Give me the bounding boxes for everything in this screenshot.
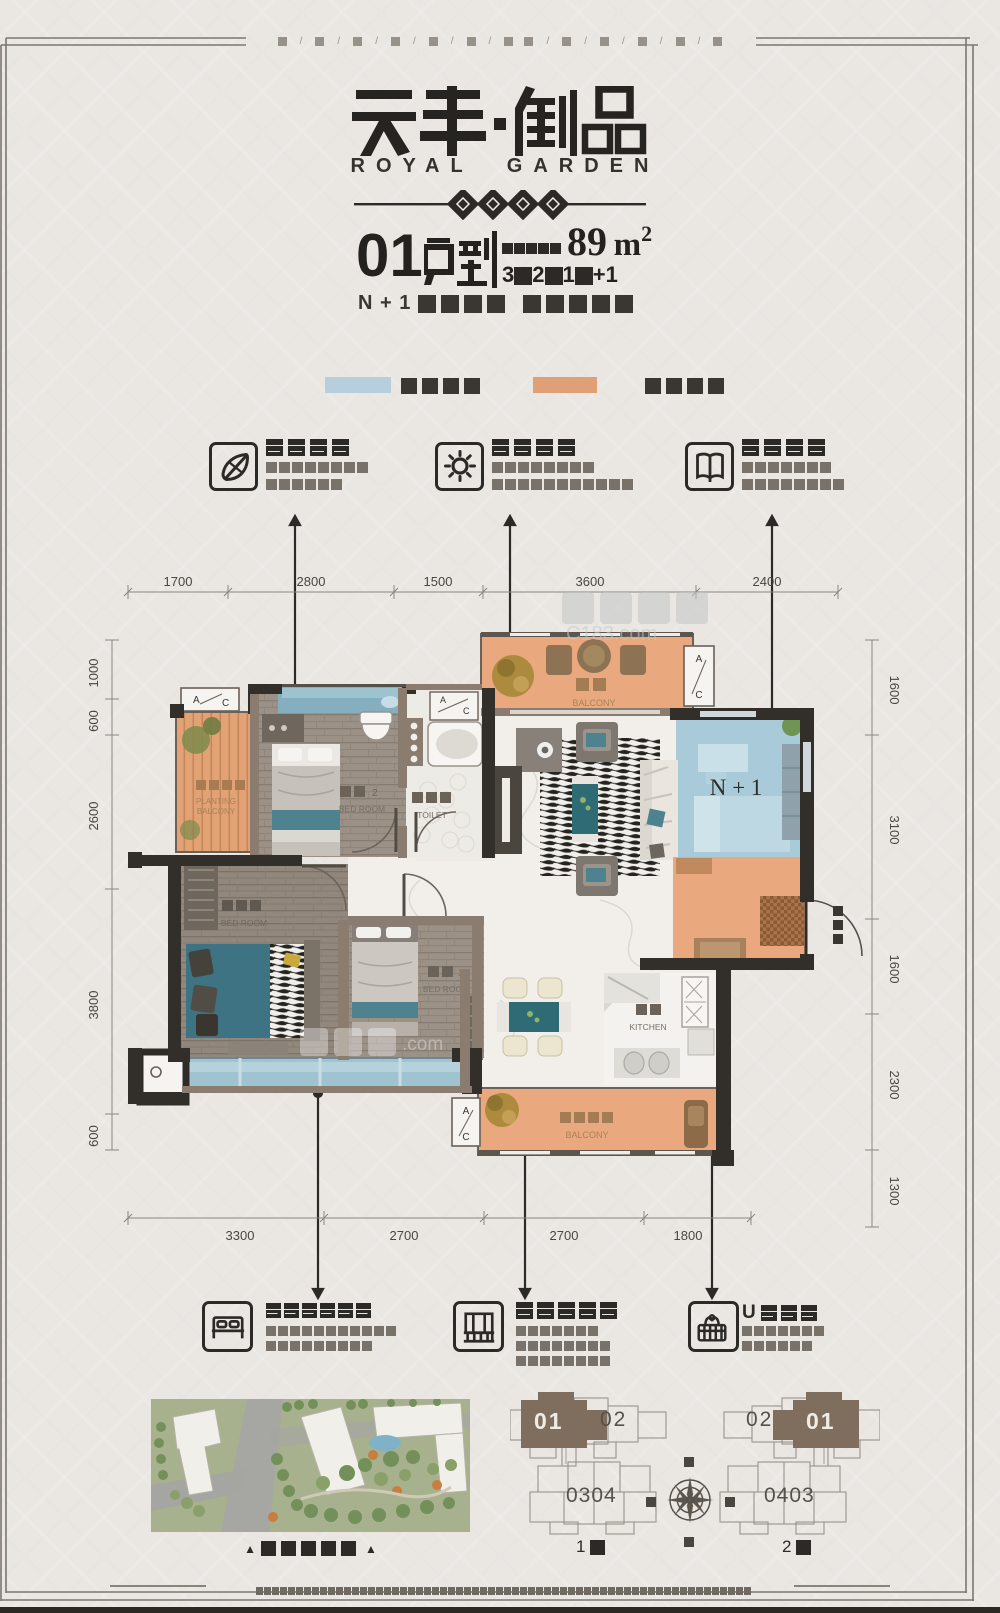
svg-text:1600: 1600 — [887, 955, 902, 984]
svg-text:1700: 1700 — [164, 574, 193, 589]
svg-text:1600: 1600 — [887, 676, 902, 705]
svg-text:2600: 2600 — [86, 802, 101, 831]
svg-text:C: C — [695, 690, 702, 701]
svg-text:KITCHEN: KITCHEN — [629, 1022, 666, 1032]
svg-text:3100: 3100 — [887, 816, 902, 845]
svg-text:1000: 1000 — [86, 659, 101, 688]
svg-text:1300: 1300 — [887, 1177, 902, 1206]
svg-text:2700: 2700 — [390, 1228, 419, 1243]
svg-text:N + 1: N + 1 — [710, 775, 763, 800]
svg-text:1800: 1800 — [674, 1228, 703, 1243]
svg-text:2400: 2400 — [753, 574, 782, 589]
svg-text:BED ROOM: BED ROOM — [339, 804, 385, 814]
svg-text:BALCONY: BALCONY — [197, 807, 236, 816]
svg-text:.com: .com — [402, 1034, 443, 1055]
svg-text:PLANTING: PLANTING — [196, 797, 236, 806]
svg-text:BALCONY: BALCONY — [565, 1130, 608, 1140]
svg-text:2300: 2300 — [887, 1071, 902, 1100]
svg-text:1500: 1500 — [424, 574, 453, 589]
svg-text:A: A — [440, 695, 446, 705]
svg-text:2800: 2800 — [297, 574, 326, 589]
svg-text:3600: 3600 — [576, 574, 605, 589]
svg-text:C: C — [463, 706, 470, 716]
svg-text:A: A — [193, 695, 200, 706]
svg-text:3800: 3800 — [86, 991, 101, 1020]
svg-text:A: A — [463, 1106, 470, 1117]
svg-text:BED ROOM: BED ROOM — [221, 918, 267, 928]
svg-text:2700: 2700 — [550, 1228, 579, 1243]
svg-text:3300: 3300 — [226, 1228, 255, 1243]
svg-text:2: 2 — [372, 788, 378, 799]
svg-text:A: A — [696, 654, 703, 665]
svg-text:C183.com: C183.com — [566, 623, 657, 645]
svg-text:C: C — [222, 698, 229, 709]
svg-text:600: 600 — [86, 710, 101, 732]
svg-text:C: C — [462, 1132, 469, 1143]
svg-text:BALCONY: BALCONY — [572, 698, 615, 708]
svg-text:600: 600 — [86, 1125, 101, 1147]
